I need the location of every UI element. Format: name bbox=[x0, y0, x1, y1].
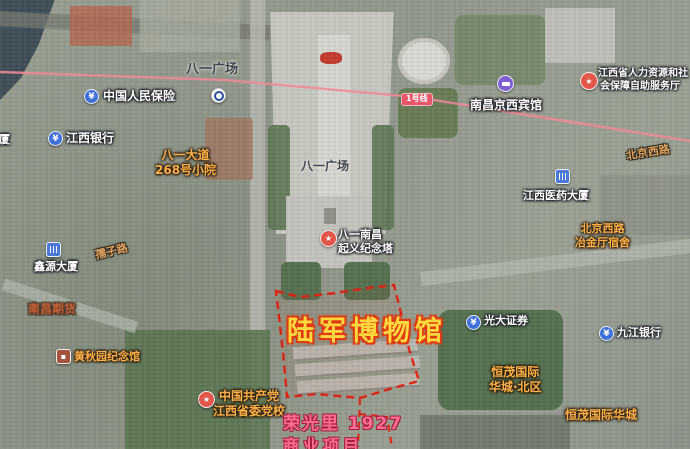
poi-label-line: 起义纪念塔 bbox=[338, 242, 393, 256]
poi-label-hr-service[interactable]: 江西省人力资源和社 会保障自助服务厅 bbox=[598, 68, 688, 93]
annotation-rongguangli: 荣光里 1927 商业项目 bbox=[283, 414, 403, 449]
poi-label-partial-daxia[interactable]: 大厦 bbox=[0, 133, 10, 147]
yuan-glyph: ¥ bbox=[52, 134, 58, 144]
metro-line-1-badge: 1号线 bbox=[401, 93, 433, 106]
bank-icon-everbright[interactable]: ¥ bbox=[466, 315, 481, 330]
poi-label-line: 江西省人力资源和社 bbox=[598, 68, 688, 81]
poi-label-xinyuan[interactable]: 鑫源大厦 bbox=[34, 260, 78, 274]
bank-icon-jiangxi-bank[interactable]: ¥ bbox=[48, 131, 63, 146]
poi-label-line: 八一大道 bbox=[155, 148, 216, 163]
yuan-glyph: ¥ bbox=[88, 92, 94, 102]
hotel-icon-jingxi[interactable] bbox=[497, 75, 514, 92]
star-glyph: ★ bbox=[325, 234, 332, 243]
poi-label-bayi-square-station[interactable]: 八一广场 bbox=[186, 62, 238, 78]
star-glyph: ★ bbox=[585, 77, 592, 86]
poi-label-line: 华城·北区 bbox=[489, 380, 542, 395]
poi-label-huang-qiuyuan[interactable]: 黄秋园纪念馆 bbox=[74, 350, 140, 364]
service-hall-icon[interactable]: ★ bbox=[580, 72, 598, 90]
poi-label-line: 八一南昌 bbox=[338, 228, 393, 242]
poi-label-hengmao-north[interactable]: 恒茂国际 华城·北区 bbox=[489, 365, 542, 395]
star-glyph: ★ bbox=[203, 395, 210, 404]
yuan-glyph: ¥ bbox=[603, 329, 609, 339]
poi-label-everbright[interactable]: 光大证券 bbox=[484, 314, 528, 328]
poi-label-line: 会保障自助服务厅 bbox=[600, 81, 688, 94]
poi-label-line: 268号小院 bbox=[155, 163, 216, 178]
poi-label-line: 北京西路 bbox=[575, 222, 630, 236]
annotation-line: 商业项目 bbox=[283, 436, 403, 449]
metro-station-icon[interactable] bbox=[211, 88, 226, 103]
bank-icon-jiujiang[interactable]: ¥ bbox=[599, 326, 614, 341]
building-icon-xinyuan[interactable] bbox=[46, 242, 61, 257]
bank-icon-picc[interactable]: ¥ bbox=[84, 89, 99, 104]
poi-label-qihuo[interactable]: 南昌期货 bbox=[28, 302, 76, 317]
annotation-army-museum: 陆军博物馆 bbox=[287, 315, 447, 349]
poi-label-party-school[interactable]: 中国共产党 江西省委党校 bbox=[213, 389, 285, 419]
memorial-hall-icon[interactable]: ▪ bbox=[56, 349, 71, 364]
yuan-glyph: ¥ bbox=[470, 318, 476, 328]
poi-label-jingxi-hotel[interactable]: 南昌京西宾馆 bbox=[470, 98, 542, 113]
poi-label-line: 恒茂国际 bbox=[489, 365, 542, 380]
memorial-tower-icon[interactable]: ★ bbox=[320, 230, 337, 247]
poi-label-hengmao[interactable]: 恒茂国际华城 bbox=[565, 408, 637, 423]
annotation-line: 荣光里 1927 bbox=[283, 414, 403, 435]
party-school-icon[interactable]: ★ bbox=[198, 391, 215, 408]
poi-label-medical-building[interactable]: 江西医药大厦 bbox=[523, 189, 589, 203]
poi-label-bayi-square-center[interactable]: 八一广场 bbox=[301, 159, 349, 174]
poi-label-line: 中国共产党 bbox=[213, 389, 285, 404]
poi-label-line: 江西省委党校 bbox=[213, 404, 285, 419]
poi-label-picc[interactable]: 中国人民保险 bbox=[103, 89, 175, 104]
poi-label-jiujiang-bank[interactable]: 九江银行 bbox=[617, 326, 661, 340]
poi-label-memorial-tower[interactable]: 八一南昌 起义纪念塔 bbox=[338, 228, 393, 256]
poi-label-bayi-268[interactable]: 八一大道 268号小院 bbox=[155, 148, 216, 178]
poi-label-line: 冶金厅宿舍 bbox=[575, 236, 630, 250]
poi-label-metallurgy-dorm[interactable]: 北京西路 冶金厅宿舍 bbox=[575, 222, 630, 250]
satellite-map-canvas[interactable]: ¥ ¥ ★ ★ ▪ ★ ¥ ¥ 1号线 中国人民保险 江西银行 大厦 八一广场 … bbox=[0, 0, 690, 449]
poi-label-jiangxi-bank[interactable]: 江西银行 bbox=[66, 131, 114, 146]
building-icon-medical[interactable] bbox=[555, 169, 570, 184]
